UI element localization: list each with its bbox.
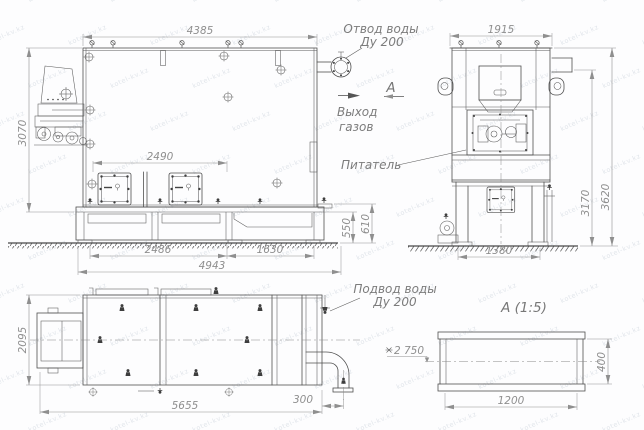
dim-detail-width: 1200 [498,395,525,407]
water-inlet-label-2: Ду 200 [372,295,417,309]
water-inlet-label-1: Подвод воды [353,282,436,296]
dim-plan-depth: 2095 [17,326,29,353]
plan-dimensions: 2095 5655 300 Подвод воды Ду 200 [17,282,437,414]
hopper [479,66,521,112]
front-dimensions: 4385 3070 2490 2486 1630 4943 550 610 [17,25,376,275]
bolt-icon [90,41,94,48]
annotations: Отвод воды Ду 200 А Выход газов [337,22,419,134]
dim-front-height: 3070 [17,119,29,146]
water-outlet-label-2: Ду 200 [359,35,404,49]
level-mark: 2 750 [386,345,430,363]
dim-base-height: 610 [360,214,372,234]
dim-detail-height: 400 [596,352,608,372]
leader-water-inlet [330,298,360,311]
leader-feeder [398,150,466,165]
dim-side-total-height: 3620 [600,183,612,210]
lifting-lug-right [549,78,564,95]
pump [438,213,458,243]
clamp-icon [120,304,125,311]
feeder-recess [467,110,533,155]
front-base-frame [76,207,324,243]
dim-grate-span: 2486 [145,244,172,256]
feeder-label: Питатель [341,158,401,172]
front-hatch-left [98,173,131,205]
valve-icon [88,198,93,204]
leader-water-outlet [346,48,362,58]
dim-plan-length: 5655 [172,400,199,412]
detail-a-title: А (1:5) [500,300,547,316]
gas-outlet-label-1: Выход [337,105,377,119]
dim-feet-span: 1380 [486,245,513,257]
dim-pipe-offset: 300 [293,394,313,406]
gas-outlet-label-2: газов [339,120,373,134]
dim-trough-height: 550 [341,218,353,238]
water-outlet-label-1: Отвод воды [343,22,418,36]
water-outlet-flange [317,52,351,77]
detail-a-view: А (1:5) 400 1200 2 750 [386,300,613,410]
section-letter: А [385,80,395,96]
dim-base-total: 4943 [199,260,226,272]
dim-front-width: 4385 [187,25,214,37]
front-view [8,41,351,249]
front-hatch-right [169,173,202,205]
technical-drawing: 4385 3070 2490 2486 1630 4943 550 610 [0,0,644,430]
drain-elbow-pipe [306,352,353,400]
side-view [408,41,578,252]
flow-arrow-icon [348,93,360,99]
plan-feeder-box [37,308,83,373]
dim-side-mid-height: 3170 [580,189,592,216]
dim-hatch-span: 2490 [147,151,174,163]
dim-trough-span: 1630 [257,244,284,256]
level-mark-value: 2 750 [394,345,424,357]
dim-side-width: 1915 [488,24,515,36]
plan-view [30,287,360,400]
lifting-lug-left [438,78,453,95]
feeder-machine [34,66,88,145]
water-inlet-stub [323,307,328,314]
fitting-mark-icon [84,52,95,63]
ground-line-front [8,243,338,248]
drawing-sheet: kotel-kv.kzkotel-kv.kzkotel-kv.kzkotel-k… [0,0,644,430]
